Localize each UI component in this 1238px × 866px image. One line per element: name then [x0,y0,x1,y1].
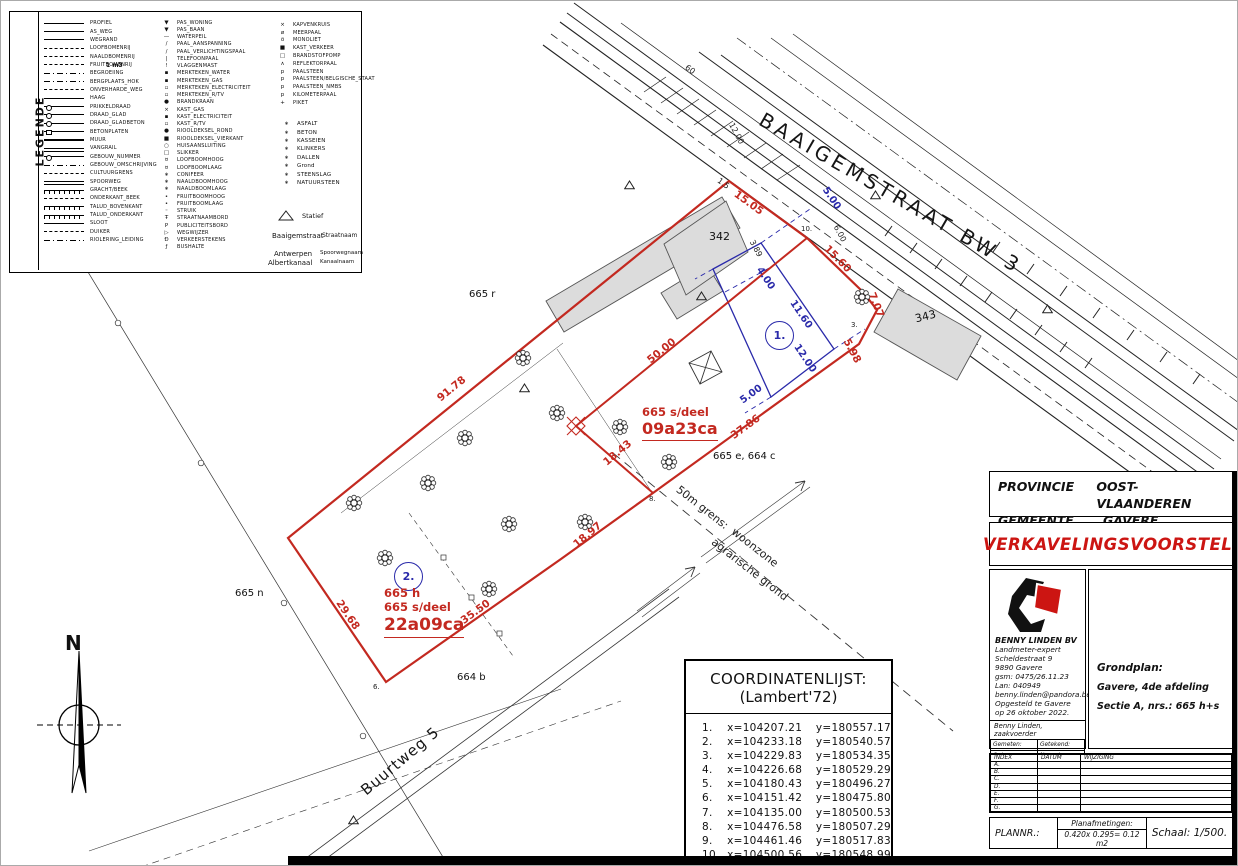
tree-icon [456,429,474,447]
revision-row: G. [991,804,1232,811]
coordinate-row: 7. x=104135.00 y=180500.53 [702,806,891,820]
legend-entry: × KAPVENKRUIS [276,21,375,29]
legend-entry: ● BRANDKRAAN [160,99,251,106]
legend-line-symbol [44,238,84,243]
rev-header-wijziging: WIJZIGING [1081,755,1232,762]
legend-box: LEGENDE PROFIEL AS_WEG WEGRAND [9,11,362,273]
legend-glyph: ■ [160,136,173,142]
statief-label: Statief [302,212,323,220]
legend-entry: p PAALSTEEN/BELGISCHE_STAAT [276,76,375,84]
legend-glyph: P [160,223,173,229]
tree-icon [419,474,437,492]
legend-line-symbol [44,96,84,101]
company-line: gsm: 0475/26.11.23 [990,672,1085,681]
legend-glyph: • [160,194,173,200]
triangle-marker-icon [1042,304,1053,314]
legend-entry: ø MEERPAAL [276,29,375,37]
legend-line-symbol [44,146,84,151]
revision-index: D. [991,783,1038,790]
legend-entry: ● RIOOLDEKSEL_ROND [160,128,251,135]
company-name: BENNY LINDEN BV [990,634,1085,645]
lot-2-label: 665 h 665 s/deel 22a09ca [384,586,464,638]
kanaal-sample-1: Antwerpen [274,250,312,258]
legend-glyph: ▪ [160,70,173,76]
tree-icon [660,453,678,471]
legend-entry: □ BRANDSTOFPOMP [276,52,375,60]
revision-index: B. [991,769,1038,776]
legend-divider [38,12,39,270]
legend-glyph: ▷ [160,230,173,236]
legend-entry: ▫ MERKTEKEN_ELECTRICITEIT [160,84,251,91]
legend-line-symbol [44,171,84,176]
legend-entry: □ SLIKKER [160,150,251,157]
lot-1-label: 665 s/deel 09a23ca [642,405,718,441]
point-number: 3. [851,321,858,329]
legend-glyph: Ð [160,237,173,243]
kanaal-label-2: Kanaalnaam [320,259,354,265]
legend-glyph: | [160,56,173,62]
legend-entry: ▪ MERKTEKEN_GAS [160,77,251,84]
legend-line-symbol [44,121,84,126]
legend-glyph: p [276,84,289,90]
legend-entry: P PUBLICITEITSBORD [160,222,251,229]
legend-entry: p KILOMETERPAAL [276,91,375,99]
rev-header-datum: DATUM [1038,755,1081,762]
kanaal-sample-2: Albertkanaal [268,259,312,267]
legend-entry: FRUITBOMENRIJ [44,61,157,69]
legend-entry: ▼ PAS_BAAN [160,26,251,33]
legend-entry: ▫ MERKTEKEN_R/TV [160,92,251,99]
legend-entry: TALUD_ONDERKANT [44,211,157,219]
legend-entry: ∗ NATUURSTEEN [280,179,340,187]
legend-line-symbol [44,221,84,226]
revision-index: E. [991,790,1038,797]
revision-row: B. [991,769,1232,776]
grondplan-line2: Sectie A, nrs.: 665 h+s [1089,693,1232,712]
legend-glyph: / [160,41,173,47]
parcel-label: 665 e, 664 c [713,451,776,462]
legend-line-symbol [44,129,84,134]
legend-glyph: ▼ [160,27,173,33]
legend-col3: × KAPVENKRUIS ø MEERPAAL ö MONOLIET ■ KA… [276,21,375,107]
legend-line-symbol [44,154,84,159]
coordinate-row: 9. x=104461.46 y=180517.83 [702,834,891,848]
legend-entry: ö MONOLIET [276,37,375,45]
shed-crossed [689,351,722,384]
legend-col1: PROFIEL AS_WEG WEGRAND LOOFBOMENRIJ [44,19,157,244]
legend-entry: ONDERKANT_BEEK [44,194,157,202]
coordinate-list-title: COORDINATENLIJST: [686,661,891,688]
legend-glyph: ∗ [280,172,293,178]
point-number: 10. [801,225,812,233]
legend-line-symbol [44,104,84,109]
legend-entry: Ð VERKEERSTEKENS [160,237,251,244]
legend-glyph: ! [160,63,173,69]
revision-row: A. [991,762,1232,769]
legend-entry: DUIKER [44,228,157,236]
legend-glyph: ◦ [160,208,173,214]
kanaal-label-1: Spoorwegnaam [320,250,363,256]
legend-entry: SPOORWEG [44,178,157,186]
legend-line-symbol [44,163,84,168]
legend-glyph: p [276,69,289,75]
legend-entry: ∗ ASFALT [280,120,340,128]
plan-sheet: LEGENDE PROFIEL AS_WEG WEGRAND [0,0,1238,866]
legend-entry: ∗ STEENSLAG [280,170,340,178]
legend-glyph: ∧ [276,61,289,67]
legend-entry: ■ RIOOLDEKSEL_VIERKANT [160,135,251,142]
legend-line-symbol [44,21,84,26]
afmetingen-cell: Planafmetingen: 0.420x 0.295= 0.12 m2 [1058,818,1147,848]
grondplan-title: Grondplan: [1089,570,1232,674]
legend-glyph: ▼ [160,20,173,26]
legend-entry: NAALDBOMENRIJ [44,52,157,60]
statief-icon [278,210,294,222]
legend-glyph: p [276,92,289,98]
provincie-value: OOST-VLAANDEREN [1096,478,1224,512]
legend-entry: LOOFBOMENRIJ [44,44,157,52]
legend-entry: / PAAL_AANSPANNING [160,41,251,48]
coordinate-row: 1. x=104207.21 y=180557.17 [702,721,891,735]
coordinate-row: 4. x=104226.68 y=180529.29 [702,763,891,777]
company-line: Landmeter-expert [990,645,1085,654]
revision-index: C. [991,776,1038,783]
coordinate-row: 5. x=104180.43 y=180496.27 [702,777,891,791]
revision-row: F. [991,797,1232,804]
tree-icon [576,513,594,531]
getekend-cell: Getekend: [1038,740,1085,751]
legend-glyph: ● [160,128,173,134]
sheet-border-right [1232,471,1238,865]
legend-entry: × KAST_GAS [160,106,251,113]
revision-row: D. [991,783,1232,790]
legend-entry: ∗ CONIFEER [160,171,251,178]
legend-materials: ∗ ASFALT ∗ BETON ∗ KASSEIEN ∗ KLINKERS [280,120,340,187]
legend-entry: ∗ DALLEN [280,154,340,162]
legend-note: 1 m3 [106,62,123,69]
point-number: 6. [373,683,380,691]
subdivision-boundary [288,181,877,682]
triangle-marker-icon [870,190,881,200]
legend-entry: | TELEFOONPAAL [160,55,251,62]
legend-entry: SLOOT [44,219,157,227]
legend-glyph: ∗ [280,146,293,152]
coordinate-list-subtitle: (Lambert'72) [686,688,891,706]
legend-glyph: ▫ [160,92,173,98]
legend-glyph: × [160,107,173,113]
lot-1-number: 1. [765,321,794,350]
lot-2-parcel-b: 665 s/deel [384,600,464,614]
legend-glyph: □ [160,150,173,156]
company-line: 9890 Gavere [990,663,1085,672]
document-title: VERKAVELINGSVOORSTEL. [983,535,1238,554]
company-line: Scheldestraat 9 [990,654,1085,663]
legend-glyph: ∗ [280,130,293,136]
parcel-label: 342 [709,230,730,243]
schaal-value: Schaal: 1/500. [1147,818,1232,848]
legend-entry: ■ KAST_VERKEER [276,44,375,52]
legend-line-symbol [44,29,84,34]
legend-entry: Ŧ STRAATNAAMBORD [160,215,251,222]
company-signer: Benny Linden, zaakvoerder [990,720,1085,739]
legend-glyph: Ŧ [160,215,173,221]
point-number: 8. [649,495,656,503]
legend-entry: ¤ LOOFBOOMHOOG [160,157,251,164]
red-marker [567,417,585,435]
legend-entry: DRAAD_GLAD [44,111,157,119]
company-line: Opgesteld te Gavere [990,699,1085,708]
legend-glyph: ∗ [160,179,173,185]
coordinate-row: 6. x=104151.42 y=180475.80 [702,791,891,805]
legend-glyph: ● [160,99,173,105]
legend-entry: / PAAL_VERLICHTINGSPAAL [160,48,251,55]
legend-glyph: ¤ [160,165,173,171]
legend-glyph: × [276,22,289,28]
legend-entry: ƒ BUSHALTE [160,244,251,251]
straatnaam-label: Straatnaam [322,232,357,239]
legend-line-symbol [44,213,84,218]
plannr-label: PLANNR.: [990,818,1058,848]
legend-glyph: ○ [160,143,173,149]
legend-glyph: ▪ [160,114,173,120]
legend-line-symbol [44,137,84,142]
legend-entry: PRIKKELDRAAD [44,102,157,110]
north-label: N [65,631,82,655]
legend-entry: BETONPLATEN [44,127,157,135]
parcel-label: 665 r [469,289,495,300]
legend-line-symbol [44,196,84,201]
legend-entry: AS_WEG [44,27,157,35]
company-lines: Landmeter-expertScheldestraat 99890 Gave… [990,645,1085,717]
rev-header-index: INDEX [991,755,1038,762]
legend-entry: ▼ PAS_WONING [160,19,251,26]
legend-entry: ∗ NAALDBOOMHOOG [160,179,251,186]
legend-entry: GEBOUW_NUMMER [44,153,157,161]
coordinate-rows: 1. x=104207.21 y=180557.17 2. x=104233.1… [686,714,891,862]
legend-entry: CULTUURGRENS [44,169,157,177]
legend-entry: ONVERHARDE_WEG [44,86,157,94]
gemeten-cell: Gemeten: [991,740,1038,751]
legend-glyph: — [160,34,173,40]
provincie-label: PROVINCIE [998,478,1096,512]
coordinate-row: 2. x=104233.18 y=180540.57 [702,735,891,749]
parcel-label: 665 n [235,588,264,599]
company-line: op 26 oktober 2022. [990,708,1085,717]
company-logo [1004,574,1068,634]
sheet-border-bottom [288,856,1238,865]
legend-line-symbol [44,71,84,76]
titleblock-header: PROVINCIE OOST-VLAANDEREN GEMEENTE GAVER… [989,471,1233,517]
legend-line-symbol [44,54,84,59]
afmetingen-label: Planafmetingen: [1058,818,1146,830]
legend-glyph: p [276,76,289,82]
plannr-box: PLANNR.: Planafmetingen: 0.420x 0.295= 0… [989,817,1233,849]
legend-glyph: □ [276,53,289,59]
legend-entry: p PAALSTEEN [276,68,375,76]
legend-glyph: ∗ [280,155,293,161]
lot-1-parcel: 665 s/deel [642,405,718,419]
legend-line-symbol [44,46,84,51]
legend-line-symbol [44,37,84,42]
legend-glyph: • [160,201,173,207]
legend-entry: RIOLERING_LEIDING [44,236,157,244]
grondplan-box: Grondplan: Gavere, 4de afdeling Sectie A… [1088,569,1233,749]
legend-entry: ∗ BETON [280,128,340,136]
legend-entry: — WATERPEIL [160,34,251,41]
legend-glyph: ¤ [160,157,173,163]
legend-entry: ▪ KAST_ELECTRICITEIT [160,113,251,120]
legend-line-symbol [44,112,84,117]
legend-col2: ▼ PAS_WONING ▼ PAS_BAAN — WATERPEIL / PA… [160,19,251,251]
tree-icon [514,349,532,367]
lot-1-area: 09a23ca [642,419,718,441]
legend-line-symbol [44,204,84,209]
buildings [546,197,981,380]
legend-entry: MUUR [44,136,157,144]
legend-glyph: ∗ [280,121,293,127]
afmetingen-value: 0.420x 0.295= 0.12 m2 [1058,830,1146,848]
legend-entry: + PIKET [276,99,375,107]
coordinate-row: 3. x=104229.83 y=180534.35 [702,749,891,763]
legend-entry: ▫ KAST_R/TV [160,121,251,128]
document-title-box: VERKAVELINGSVOORSTEL. [989,522,1233,566]
legend-entry: ∗ KASSEIEN [280,137,340,145]
legend-entry: BERGPLAATS_HOK [44,77,157,85]
revision-index: A. [991,762,1038,769]
company-line: benny.linden@pandora.be [990,690,1085,699]
legend-entry: WEGRAND [44,36,157,44]
lot-2-area: 22a09ca [384,615,464,638]
legend-glyph: ∗ [280,180,293,186]
legend-glyph: ƒ [160,244,173,250]
north-arrow [37,651,121,793]
lot-2-parcel-a: 665 h [384,586,464,600]
legend-entry: DRAAD_GLADBETON [44,119,157,127]
triangle-marker-icon [696,291,707,301]
revision-row: E. [991,790,1232,797]
legend-entry: HAAG [44,94,157,102]
tree-icon [548,404,566,422]
legend-glyph: ∗ [160,186,173,192]
legend-entry: ▷ WEGWIJZER [160,229,251,236]
triangle-marker-icon [624,180,635,190]
legend-entry: TALUD_BOVENKANT [44,203,157,211]
legend-entry: GEBOUW_OMSCHRIJVING [44,161,157,169]
company-line: Lan: 040949 [990,681,1085,690]
legend-glyph: / [160,49,173,55]
legend-line-symbol [44,79,84,84]
legend-entry: ▪ MERKTEKEN_WATER [160,70,251,77]
legend-entry: ◦ STRUIK [160,208,251,215]
legend-entry: BEGROEIING [44,69,157,77]
revision-table: INDEX DATUM WIJZIGING A. B. [989,753,1233,813]
legend-glyph: ∗ [280,138,293,144]
legend-line-symbol [44,188,84,193]
tree-icon [376,549,394,567]
coordinate-row: 8. x=104476.58 y=180507.29 [702,820,891,834]
legend-entry: ∗ NAALDBOOMLAAG [160,186,251,193]
legend-entry: • FRUITBOOMLAAG [160,200,251,207]
triangle-marker-icon [348,815,359,825]
legend-glyph: ö [276,37,289,43]
coordinate-list-box: COORDINATENLIJST: (Lambert'72) 1. x=1042… [684,659,893,865]
grondplan-line1: Gavere, 4de afdeling [1089,674,1232,693]
legend-line-symbol [44,229,84,234]
legend-entry: ○ HUISAANSLUITING [160,142,251,149]
company-box: BENNY LINDEN BV Landmeter-expertScheldes… [989,569,1086,749]
legend-entry: PROFIEL [44,19,157,27]
tree-icon [500,515,518,533]
legend-glyph: ø [276,30,289,36]
legend-line-symbol [44,87,84,92]
legend-glyph: ■ [276,45,289,51]
legend-glyph: + [276,100,289,106]
revision-index: G. [991,804,1038,811]
revision-index: F. [991,797,1038,804]
legend-entry: VANGRAIL [44,144,157,152]
legend-line-symbol [44,179,84,184]
legend-entry: ∧ REFLEKTORPAAL [276,60,375,68]
legend-entry: GRACHT/BEEK [44,186,157,194]
legend-entry: p PAALSTEEN_NMBS [276,83,375,91]
legend-entry: ¤ LOOFBOOMLAAG [160,164,251,171]
revision-row: C. [991,776,1232,783]
tree-icon [345,494,363,512]
tree-icon [853,288,871,306]
parcel-label: 664 b [457,672,486,683]
cadastral-lines [71,244,651,866]
legend-glyph: ∗ [280,163,293,169]
tree-icon [611,418,629,436]
tree-icon [480,580,498,598]
legend-entry: • FRUITBOOMHOOG [160,193,251,200]
legend-glyph: ▪ [160,78,173,84]
triangle-marker-icon [519,383,530,393]
legend-glyph: ▫ [160,121,173,127]
legend-entry: ∗ KLINKERS [280,145,340,153]
straatnaam-sample: Baaigemstraat [272,232,324,240]
legend-entry: ∗ Grond [280,162,340,170]
legend-glyph: ▫ [160,85,173,91]
legend-line-symbol [44,62,84,67]
legend-glyph: ∗ [160,172,173,178]
legend-entry: ! VLAGGENMAST [160,63,251,70]
